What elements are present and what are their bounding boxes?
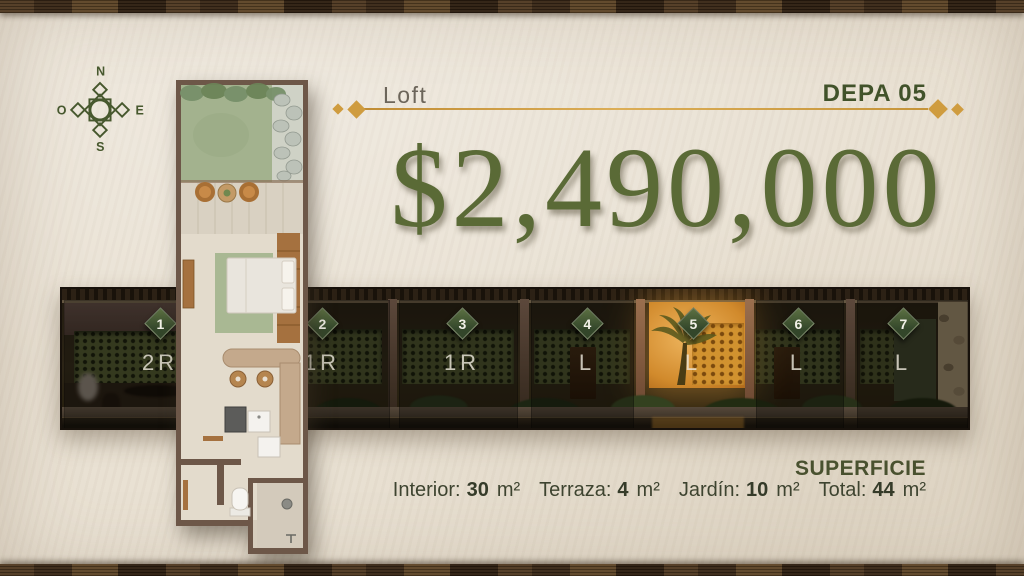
- measurement-interior: Interior:30m²: [393, 479, 520, 502]
- unit-badge-5: 5: [678, 308, 708, 338]
- measurement-terraza: Terraza:4m²: [539, 479, 660, 502]
- unit-number: 2: [318, 315, 326, 331]
- diamond-badge-icon: 3: [446, 307, 479, 340]
- price-label: $2,490,000: [382, 131, 952, 245]
- unit-number: 3: [458, 315, 466, 331]
- unit-type-label-7: L: [853, 350, 953, 376]
- compass-east-label: E: [136, 104, 144, 118]
- unit-number: 4: [583, 315, 591, 331]
- unit-type-label-3: 1R: [412, 350, 512, 376]
- unit-number: 1: [156, 315, 164, 331]
- measurement-total: Total:44m²: [819, 479, 926, 502]
- gold-divider-line: [364, 108, 928, 110]
- unit-badge-6: 6: [783, 308, 813, 338]
- wood-frame-bottom: [0, 564, 1024, 576]
- washer: [258, 437, 280, 457]
- unit-type-label-5: L: [643, 350, 743, 376]
- unit-code-label: DEPA 05: [640, 80, 927, 108]
- compass-south-label: S: [96, 140, 104, 154]
- superficie-title: SUPERFICIE: [640, 457, 926, 481]
- floor-plan: [176, 80, 308, 554]
- stove: [225, 407, 246, 432]
- category-label: Loft: [383, 82, 427, 109]
- unit-type-label-4: L: [537, 350, 637, 376]
- console: [183, 260, 194, 308]
- listing-slide: 1 2 3 4 5 6 7 2R 1R 1R L L L L: [0, 0, 1024, 576]
- pool-reflection: [652, 417, 744, 430]
- diamond-badge-icon: 1: [144, 307, 177, 340]
- compass-rose-icon: N S O E: [52, 60, 148, 156]
- unit-number: 6: [794, 315, 802, 331]
- unit-badge-7: 7: [888, 308, 918, 338]
- shower-drain: [282, 499, 292, 509]
- unit-badge-3: 3: [447, 308, 477, 338]
- diamond-badge-icon: 7: [887, 307, 920, 340]
- wood-frame-top: [0, 0, 1024, 13]
- unit-badge-2: 2: [307, 308, 337, 338]
- unit-number: 5: [689, 315, 697, 331]
- diamond-badge-icon: 4: [571, 307, 604, 340]
- unit-number: 7: [899, 315, 907, 331]
- shower-floor: [257, 483, 303, 548]
- compass-north-label: N: [96, 64, 105, 78]
- measurement-jardin: Jardín:10m²: [679, 479, 800, 502]
- superficie-measurements: Interior:30m² Terraza:4m² Jardín:10m² To…: [400, 479, 926, 502]
- sink: [248, 411, 270, 432]
- unit-badge-1: 1: [145, 308, 175, 338]
- diamond-badge-icon: 5: [677, 307, 710, 340]
- unit-badge-4: 4: [572, 308, 602, 338]
- diamond-badge-icon: 2: [306, 307, 339, 340]
- unit-type-label-6: L: [748, 350, 848, 376]
- compass-west-label: O: [57, 104, 67, 118]
- diamond-badge-icon: 6: [782, 307, 815, 340]
- toilet: [232, 488, 248, 510]
